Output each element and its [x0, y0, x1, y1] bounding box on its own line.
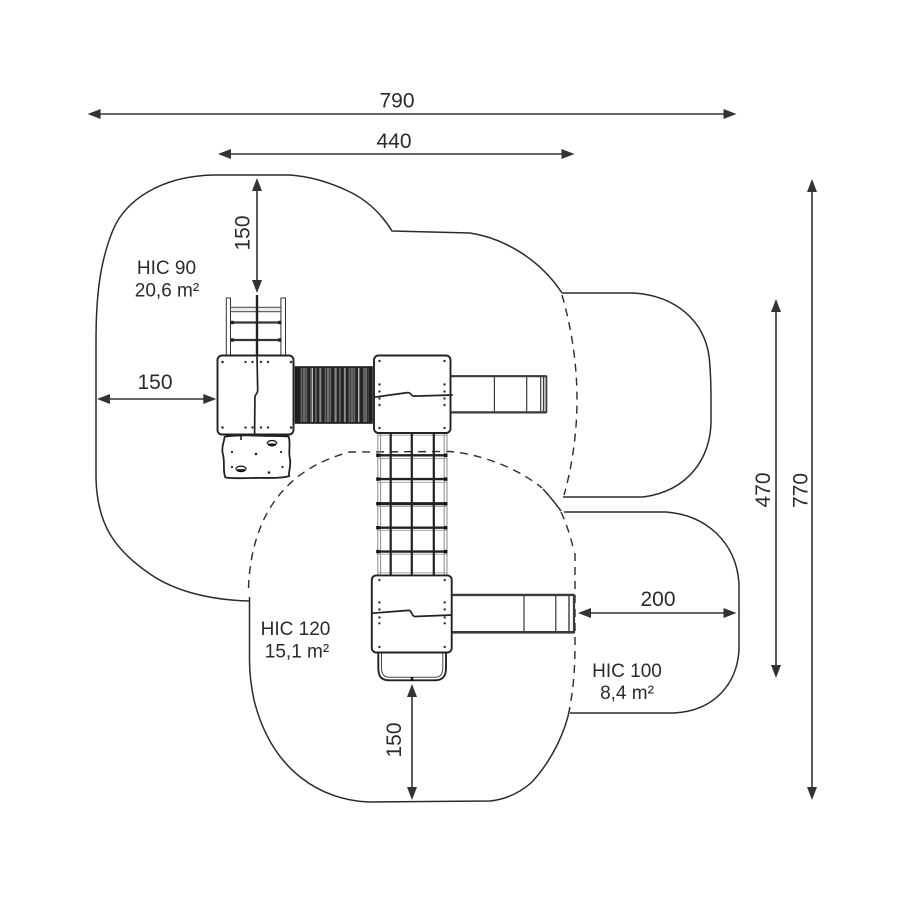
svg-text:HIC 100: HIC 100 — [592, 661, 662, 682]
svg-text:770: 770 — [790, 473, 813, 508]
svg-text:15,1 m²: 15,1 m² — [265, 642, 329, 663]
svg-text:440: 440 — [376, 130, 411, 153]
svg-text:150: 150 — [383, 722, 406, 757]
svg-text:HIC 120: HIC 120 — [261, 619, 331, 640]
svg-text:150: 150 — [232, 215, 255, 250]
svg-text:150: 150 — [137, 371, 172, 394]
svg-text:790: 790 — [379, 90, 414, 113]
svg-text:HIC 90: HIC 90 — [137, 258, 196, 279]
svg-text:200: 200 — [640, 588, 675, 611]
svg-text:8,4 m²: 8,4 m² — [600, 683, 654, 704]
svg-text:470: 470 — [752, 472, 775, 507]
svg-text:20,6 m²: 20,6 m² — [135, 281, 199, 302]
